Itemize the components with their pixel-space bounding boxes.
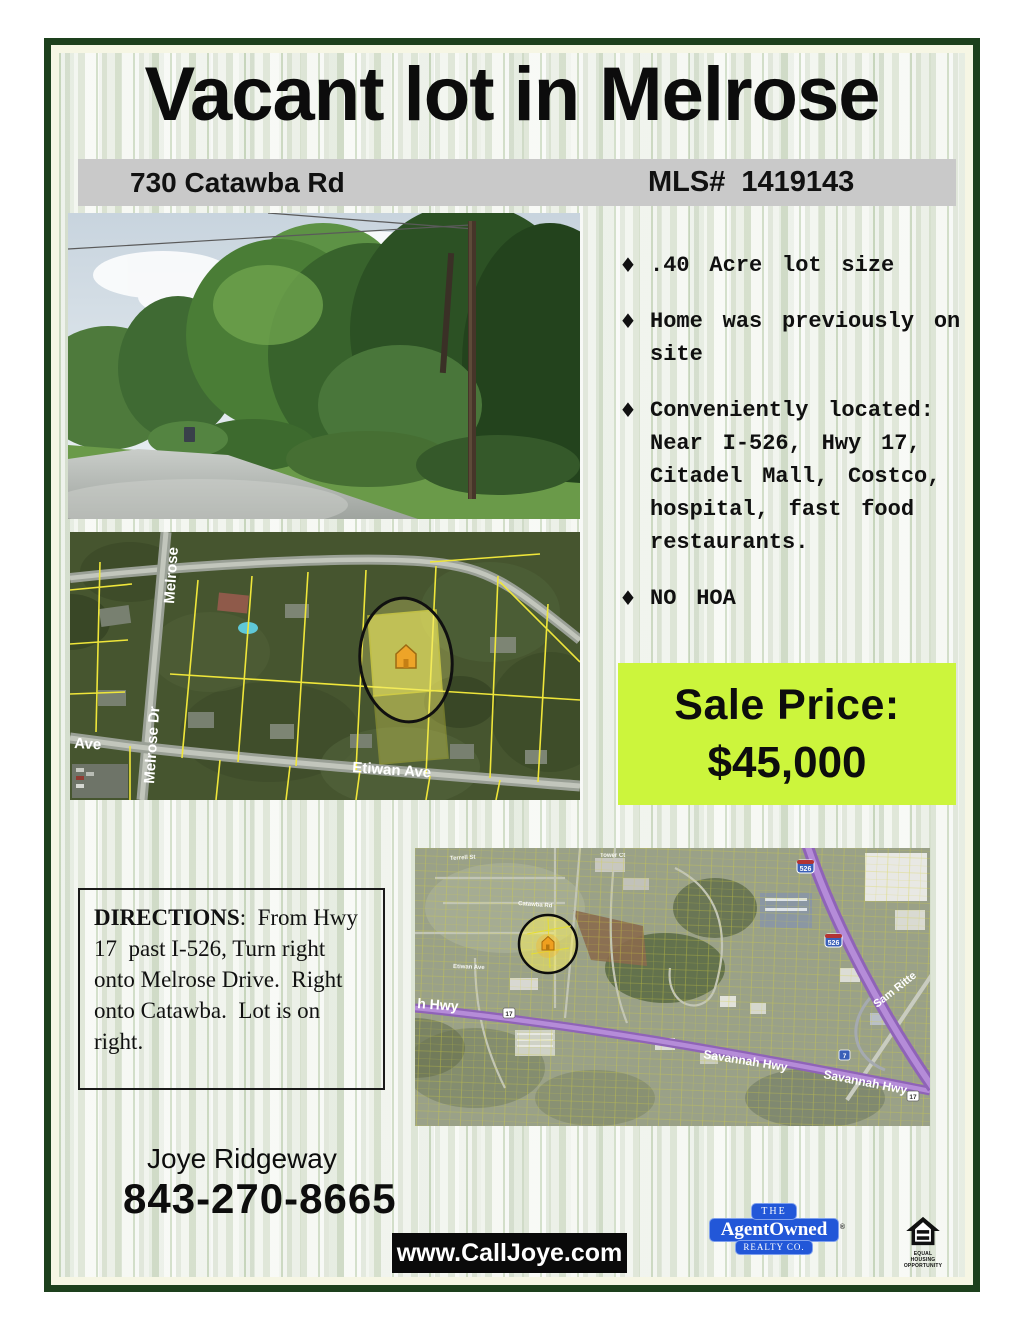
- sale-price-box: Sale Price: $45,000: [618, 663, 956, 805]
- route-17-shield: 17: [907, 1091, 919, 1101]
- feature-list: ♦.40 Acre lot size ♦Home was previously …: [619, 249, 963, 638]
- feature-item: ♦Conveniently located: Near I-526, Hwy 1…: [619, 394, 963, 559]
- mls-number: MLS# 1419143: [648, 166, 854, 199]
- feature-item: ♦Home was previously on site: [619, 305, 963, 371]
- diamond-bullet-icon: ♦: [619, 305, 637, 338]
- flyer-page: Vacant lot in Melrose 730 Catawba Rd MLS…: [44, 38, 980, 1292]
- label-ave: Ave: [74, 735, 102, 753]
- areamap-highlight-circle: [519, 915, 577, 973]
- equal-housing-text-1: EQUAL HOUSING: [903, 1251, 943, 1263]
- feature-text: Conveniently located: Near I-526, Hwy 17…: [650, 398, 940, 555]
- route-7-shield: 7: [839, 1050, 850, 1060]
- diamond-bullet-icon: ♦: [619, 582, 637, 615]
- flyer-title: Vacant lot in Melrose: [59, 55, 965, 135]
- svg-text:526: 526: [828, 940, 840, 947]
- agent-name: Joye Ridgeway: [147, 1143, 337, 1175]
- website-box: www.CallJoye.com: [392, 1233, 627, 1273]
- svg-text:7: 7: [843, 1053, 847, 1060]
- equal-housing-logo: EQUAL HOUSING OPPORTUNITY: [903, 1216, 943, 1269]
- agent-phone: 843-270-8665: [123, 1175, 397, 1223]
- svg-text:17: 17: [909, 1094, 917, 1101]
- sale-price-label: Sale Price:: [674, 681, 899, 730]
- agentowned-realty-co: REALTY CO.: [735, 1240, 813, 1255]
- website-url: www.CallJoye.com: [397, 1239, 623, 1268]
- property-address: 730 Catawba Rd: [130, 167, 345, 199]
- parcel-aerial-map: Melrose Melrose Dr Ave Etiwan Ave: [70, 532, 580, 800]
- agentowned-name: AgentOwned®: [709, 1218, 839, 1242]
- interstate-526-shield: 526: [825, 934, 842, 947]
- agentowned-logo: THE AgentOwned® REALTY CO.: [707, 1203, 841, 1255]
- equal-housing-house-icon: [905, 1216, 941, 1246]
- photo-trash-bin: [184, 427, 195, 442]
- svg-text:17: 17: [505, 1011, 513, 1018]
- equal-housing-text-2: OPPORTUNITY: [903, 1263, 943, 1269]
- directions-box: DIRECTIONS: From Hwy 17 past I-526, Turn…: [78, 888, 385, 1090]
- registered-mark: ®: [840, 1217, 845, 1238]
- label-hwy-left: h Hwy: [417, 995, 459, 1014]
- feature-item: ♦NO HOA: [619, 582, 963, 615]
- feature-text: Home was previously on site: [650, 309, 960, 367]
- svg-text:526: 526: [800, 866, 812, 873]
- diamond-bullet-icon: ♦: [619, 394, 637, 427]
- feature-item: ♦.40 Acre lot size: [619, 249, 963, 282]
- photo-utility-pole: [468, 221, 476, 499]
- flyer-background-texture: Vacant lot in Melrose 730 Catawba Rd MLS…: [59, 53, 965, 1277]
- interstate-526-shield: 526: [797, 860, 814, 873]
- address-bar: 730 Catawba Rd MLS# 1419143: [78, 159, 956, 206]
- label-tower: Tower Ct: [600, 853, 625, 859]
- label-etiwan-small: Etiwan Ave: [453, 964, 485, 971]
- sale-price-amount: $45,000: [707, 738, 866, 788]
- feature-text: NO HOA: [650, 586, 736, 611]
- lot-photo: [68, 213, 580, 519]
- feature-text: .40 Acre lot size: [650, 253, 894, 278]
- directions-heading: DIRECTIONS: [94, 905, 240, 930]
- route-17-shield: 17: [503, 1008, 515, 1018]
- diamond-bullet-icon: ♦: [619, 249, 637, 282]
- agentowned-the: THE: [751, 1203, 797, 1220]
- area-aerial-map: 526 526 17 17 7 h Hwy Savannah Hwy: [415, 848, 930, 1126]
